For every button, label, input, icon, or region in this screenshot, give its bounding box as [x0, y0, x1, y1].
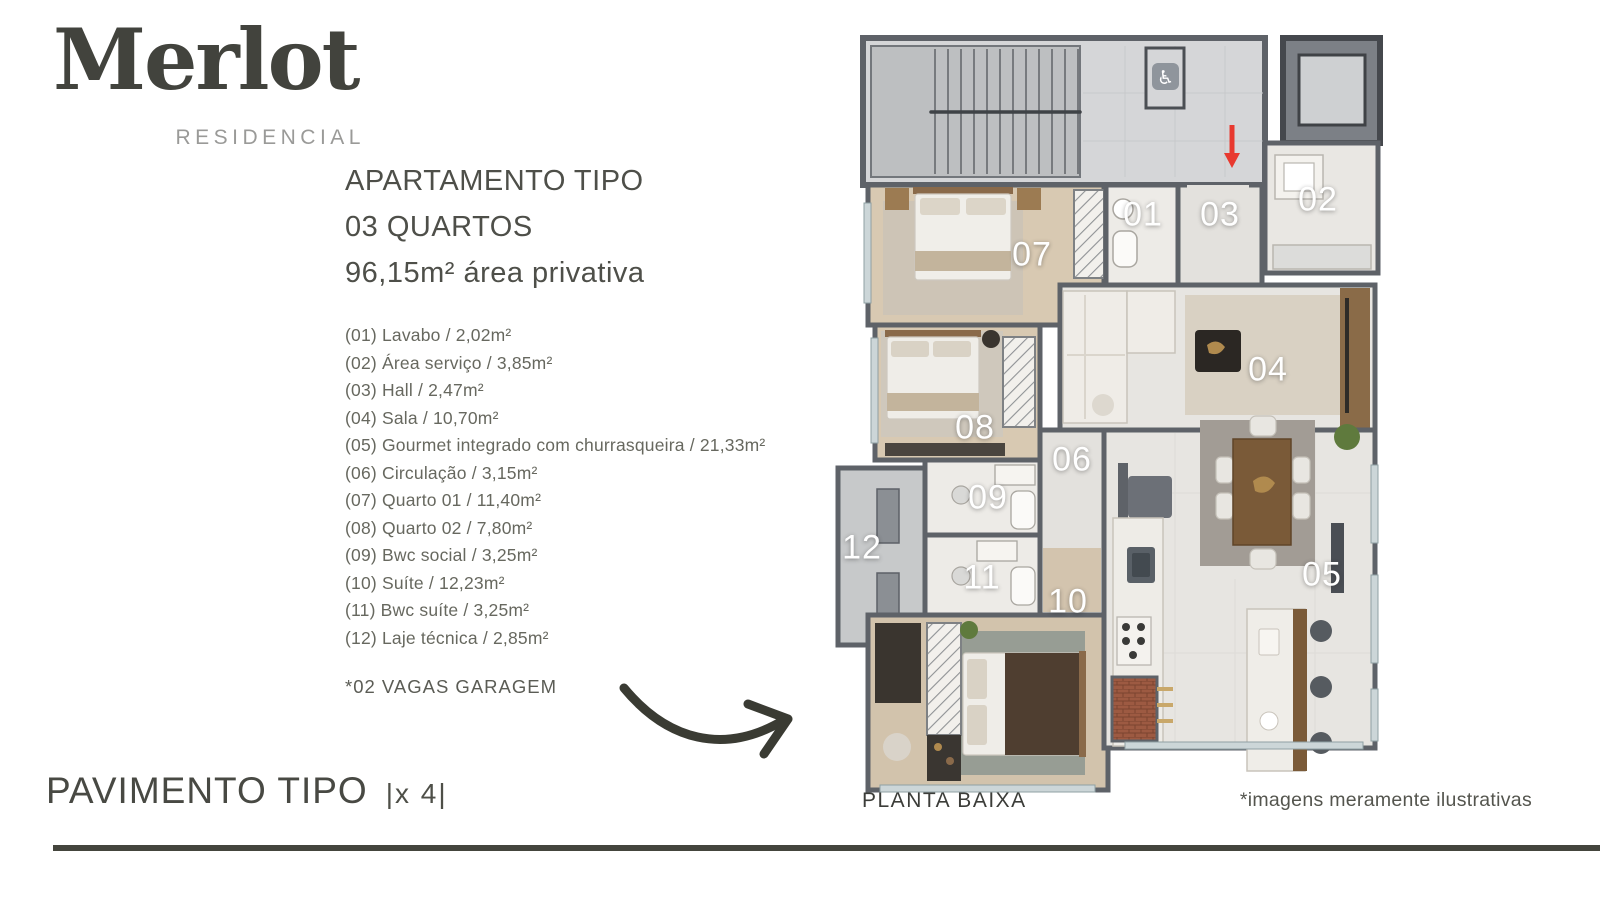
room-list-item: (11) Bwc suíte / 3,25m²	[345, 597, 765, 625]
floor-plan: ♿	[835, 33, 1395, 795]
flyer-page: Merlot RESIDENCIAL APARTAMENTO TIPO 03 Q…	[0, 0, 1600, 900]
brand-subtitle: RESIDENCIAL	[55, 126, 365, 150]
accessible-elevator: ♿	[1146, 48, 1184, 108]
room-list-item: (01) Lavabo / 2,02m²	[345, 322, 765, 350]
plan-label-11: 11	[963, 559, 1000, 598]
plan-label-08: 08	[955, 409, 995, 448]
apartment-type: APARTAMENTO TIPO	[345, 158, 645, 204]
room-list-item: (06) Circulação / 3,15m²	[345, 460, 765, 488]
pavement-multiplier: |x 4|	[386, 778, 448, 809]
room-list-item: (07) Quarto 01 / 11,40m²	[345, 487, 765, 515]
plan-caption: PLANTA BAIXA	[862, 789, 1027, 813]
plan-label-10: 10	[1048, 583, 1088, 622]
brand-logo: Merlot	[53, 14, 365, 106]
plan-label-02: 02	[1298, 181, 1338, 220]
garage-note: *02 VAGAS GARAGEM	[345, 676, 557, 698]
plan-label-06: 06	[1052, 441, 1092, 480]
plan-label-03: 03	[1200, 196, 1240, 235]
room-list-item: (05) Gourmet integrado com churrasqueira…	[345, 432, 765, 460]
disclaimer-note: *imagens meramente ilustrativas	[1240, 789, 1532, 812]
room-list-item: (04) Sala / 10,70m²	[345, 405, 765, 433]
plan-common-area: ♿	[863, 38, 1265, 185]
apartment-heading: APARTAMENTO TIPO 03 QUARTOS 96,15m² área…	[345, 158, 645, 296]
svg-text:♿: ♿	[1157, 67, 1174, 89]
room-list-item: (12) Laje técnica / 2,85m²	[345, 625, 765, 653]
plan-label-05: 05	[1302, 556, 1342, 595]
floor-plan-graphic: ♿	[835, 33, 1395, 795]
room-list-item: (09) Bwc social / 3,25m²	[345, 542, 765, 570]
plan-room-suite	[868, 615, 1108, 790]
room-list-item: (02) Área serviço / 3,85m²	[345, 350, 765, 378]
plan-elevator-shaft	[1283, 38, 1380, 143]
room-list: (01) Lavabo / 2,02m² (02) Área serviço /…	[345, 322, 765, 652]
plan-label-12: 12	[842, 529, 882, 568]
room-list-item: (10) Suíte / 12,23m²	[345, 570, 765, 598]
room-list-item: (08) Quarto 02 / 7,80m²	[345, 515, 765, 543]
room-list-item: (03) Hall / 2,47m²	[345, 377, 765, 405]
apartment-area: 96,15m² área privativa	[345, 250, 645, 296]
plan-label-09: 09	[968, 479, 1008, 518]
pavement-title: PAVIMENTO TIPO|x 4|	[46, 770, 448, 812]
plan-label-04: 04	[1248, 351, 1288, 390]
divider-bar	[53, 845, 1600, 851]
pavement-title-text: PAVIMENTO TIPO	[46, 770, 368, 811]
plan-label-01: 01	[1123, 196, 1163, 235]
curved-arrow-icon	[612, 676, 812, 773]
plan-label-07: 07	[1012, 236, 1052, 275]
apartment-bedrooms: 03 QUARTOS	[345, 204, 645, 250]
